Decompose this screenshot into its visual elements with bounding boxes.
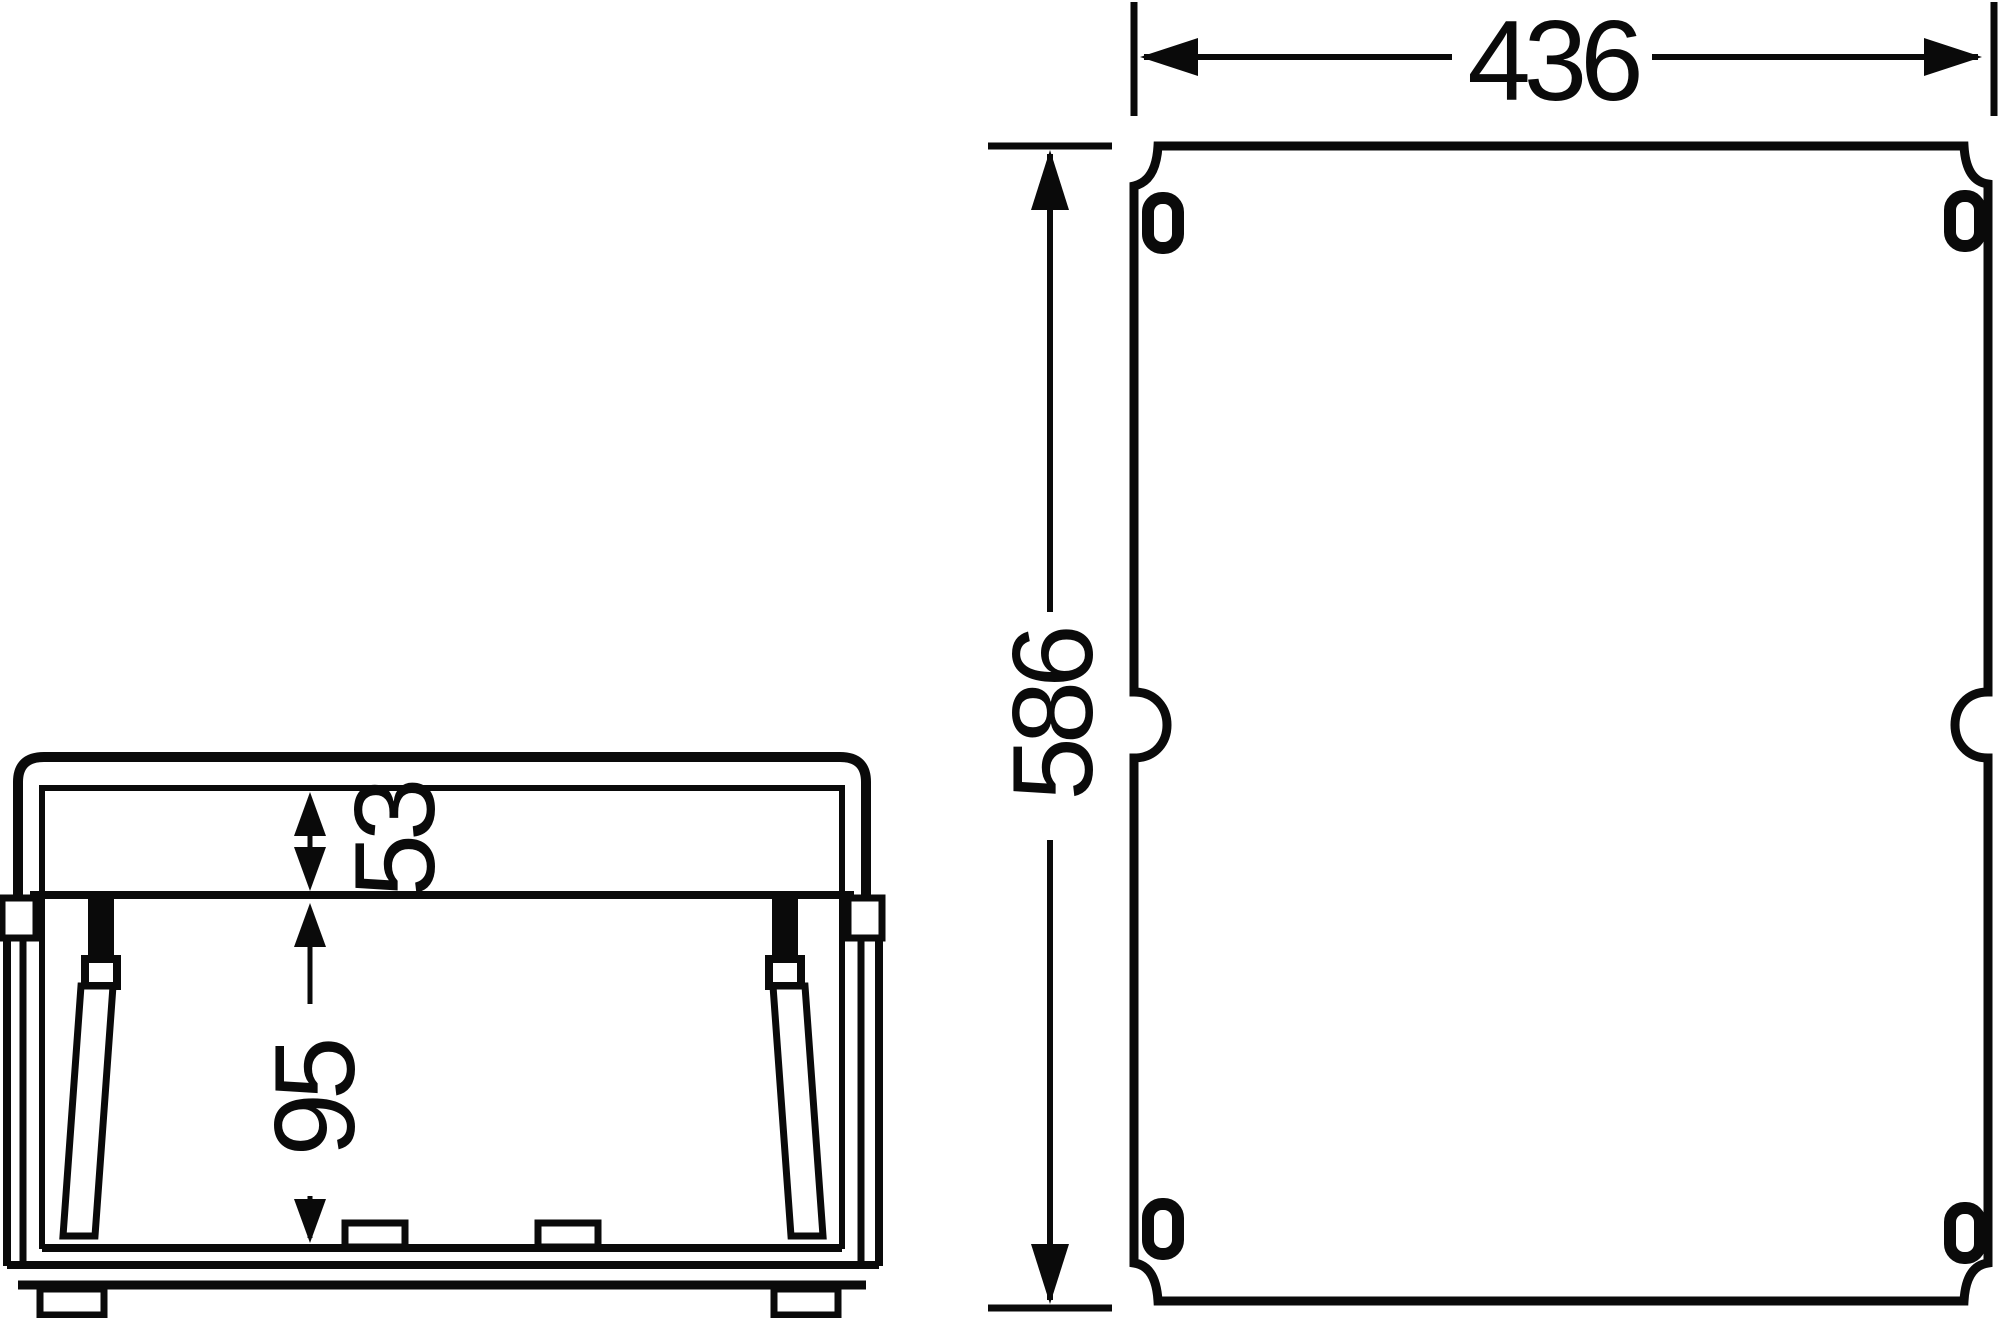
drawing-svg: 436 586: [0, 0, 2000, 1318]
cover-depth-dimension-label: 53: [332, 782, 459, 897]
height-arrowhead-top-icon: [1031, 150, 1069, 210]
floor-tab-left: [345, 1223, 405, 1247]
base-depth-dimension: 95: [252, 903, 379, 1243]
cover-depth-arrowhead-up-icon: [294, 792, 326, 836]
width-arrowhead-left-icon: [1140, 38, 1198, 76]
corner-slot-bottom-left: [1148, 1204, 1178, 1254]
floor-tab-right: [538, 1223, 598, 1247]
base-depth-arrowhead-up-icon: [294, 903, 326, 947]
height-dimension-label: 586: [990, 629, 1117, 801]
height-dimension: 586: [988, 146, 1117, 1308]
corner-slot-top-left: [1148, 198, 1178, 248]
latch-tab-left: [2, 898, 36, 938]
corner-slot-top-right: [1950, 196, 1980, 246]
mounting-foot-right: [774, 1289, 838, 1315]
cover-stay-arm-right: [773, 986, 823, 1236]
hinge-block-left: [88, 897, 114, 959]
base-depth-arrowhead-down-icon: [294, 1199, 326, 1243]
height-arrowhead-bottom-icon: [1031, 1244, 1069, 1304]
width-dimension: 436: [1134, 0, 1994, 125]
panel-outline: [1134, 146, 1988, 1301]
cover-depth-arrowhead-down-icon: [294, 847, 326, 891]
latch-tab-right: [848, 898, 882, 938]
hinge-block-right: [772, 897, 798, 959]
hinge-pivot-left: [85, 959, 117, 986]
mounting-foot-left: [40, 1289, 104, 1315]
cover-stay-arm-left: [63, 986, 113, 1236]
front-view-figure: [1134, 146, 1988, 1301]
width-dimension-label: 436: [1467, 0, 1639, 125]
cover-depth-dimension: 53: [294, 782, 459, 897]
dimension-drawing-canvas: 436 586: [0, 0, 2000, 1318]
hinge-pivot-right: [769, 959, 801, 986]
base-depth-dimension-label: 95: [252, 1041, 379, 1156]
width-arrowhead-right-icon: [1924, 38, 1982, 76]
corner-slot-bottom-right: [1950, 1208, 1980, 1258]
